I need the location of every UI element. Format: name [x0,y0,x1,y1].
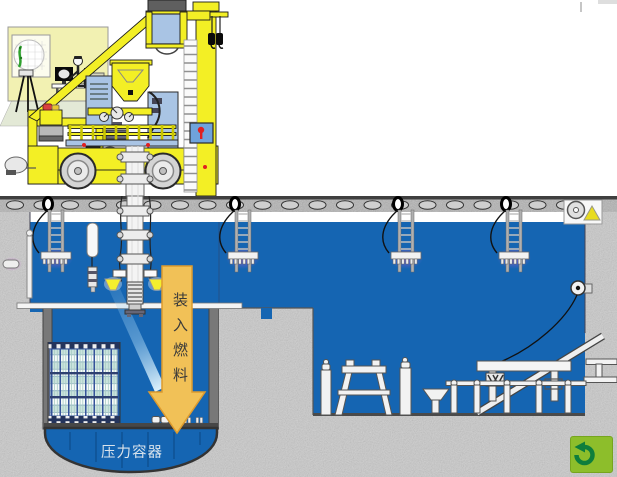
refueling-scene: 装入燃料 压力容器 [0,0,617,477]
wheel-left [61,154,96,189]
scrollbar-artifact [580,2,582,12]
ground-line [0,196,617,200]
trolley [146,12,187,54]
support-post-2 [400,358,411,416]
back-button[interactable] [570,436,613,473]
side-cart [40,110,62,125]
pool-floor-line [313,413,585,416]
underground-scene [0,196,617,477]
platform-railing [66,125,178,146]
corner-artifact [598,0,617,4]
support-post-1 [321,360,331,416]
tower-ladder [184,40,197,192]
wall-pulley-top [564,200,602,224]
signal-box [190,123,213,143]
reactor-core [48,342,120,423]
above-ground-scene [0,0,617,196]
middle-wall [219,308,313,477]
pressure-vessel-label: 压力容器 [90,441,174,462]
level-pole [27,230,33,298]
wall-lamp [2,257,22,271]
return-arrow-icon [571,441,598,468]
load-fuel-arrow-label: 装入燃料 [161,286,191,398]
transfer-slot [261,308,272,319]
